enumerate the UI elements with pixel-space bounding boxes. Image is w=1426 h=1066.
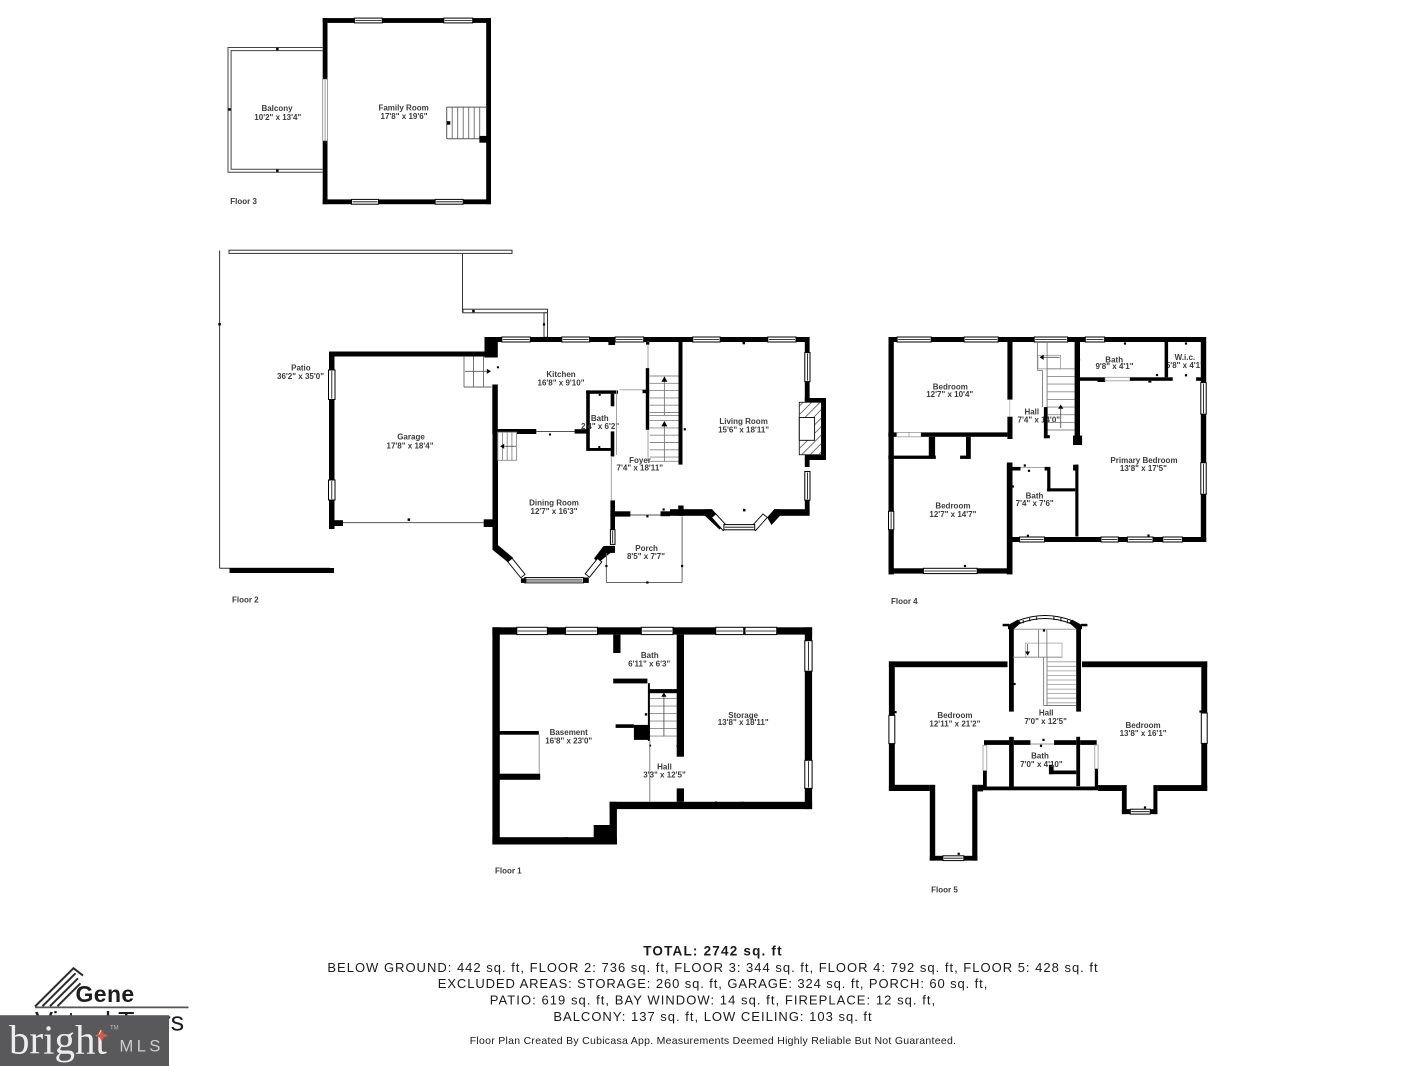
svg-text:10'2" x 13'4": 10'2" x 13'4" xyxy=(254,113,301,122)
svg-text:Balcony: Balcony xyxy=(261,104,293,113)
svg-text:17'8" x 18'4": 17'8" x 18'4" xyxy=(387,441,434,450)
svg-text:Family Room: Family Room xyxy=(378,103,428,112)
svg-text:5'8" x 4'1": 5'8" x 4'1" xyxy=(1166,361,1204,370)
svg-text:12'7" x 10'4": 12'7" x 10'4" xyxy=(926,390,973,399)
svg-text:7'0" x 12'5": 7'0" x 12'5" xyxy=(1024,717,1067,726)
svg-text:Dining Room: Dining Room xyxy=(529,498,579,507)
svg-text:PATIO: 619 sq. ft, BAY WINDOW:: PATIO: 619 sq. ft, BAY WINDOW: 14 sq. ft… xyxy=(490,993,936,1008)
svg-text:12'7" x 14'7": 12'7" x 14'7" xyxy=(929,510,976,519)
svg-text:7'4" x 18'11": 7'4" x 18'11" xyxy=(617,464,664,473)
svg-text:7'4" x 14'0": 7'4" x 14'0" xyxy=(1018,415,1061,424)
svg-text:Floor 2: Floor 2 xyxy=(232,595,259,604)
svg-text:2'4" x 6'2": 2'4" x 6'2" xyxy=(581,422,619,431)
svg-text:bright: bright xyxy=(9,1017,108,1063)
svg-text:TOTAL: 2742 sq. ft: TOTAL: 2742 sq. ft xyxy=(643,944,783,959)
svg-text:6'11" x 6'3": 6'11" x 6'3" xyxy=(628,660,670,669)
svg-text:16'8" x 9'10": 16'8" x 9'10" xyxy=(538,379,585,388)
svg-text:9'8" x 4'1": 9'8" x 4'1" xyxy=(1095,362,1133,371)
svg-text:13'8" x 17'5": 13'8" x 17'5" xyxy=(1120,464,1167,473)
svg-text:12'7" x 16'3": 12'7" x 16'3" xyxy=(531,507,578,516)
svg-text:Kitchen: Kitchen xyxy=(546,370,575,379)
svg-text:7'4" x 7'6": 7'4" x 7'6" xyxy=(1016,499,1054,508)
svg-text:Floor Plan Created By Cubicasa: Floor Plan Created By Cubicasa App. Meas… xyxy=(470,1035,957,1047)
svg-text:Garage: Garage xyxy=(397,433,425,442)
svg-text:12'11" x 21'2": 12'11" x 21'2" xyxy=(929,719,980,728)
svg-text:TM: TM xyxy=(110,1026,119,1032)
svg-text:BELOW GROUND: 442 sq. ft, FLOO: BELOW GROUND: 442 sq. ft, FLOOR 2: 736 s… xyxy=(327,960,1098,975)
svg-text:36'2" x 35'0": 36'2" x 35'0" xyxy=(277,372,324,381)
svg-text:Floor 3: Floor 3 xyxy=(230,197,257,206)
svg-text:3'3" x 12'5": 3'3" x 12'5" xyxy=(643,771,686,780)
svg-text:7'0" x 4'10": 7'0" x 4'10" xyxy=(1020,760,1063,769)
svg-text:Floor 5: Floor 5 xyxy=(931,885,958,894)
svg-text:13'8" x 18'11": 13'8" x 18'11" xyxy=(718,718,769,727)
svg-text:16'8" x 23'0": 16'8" x 23'0" xyxy=(545,737,592,746)
svg-text:8'5" x 7'7": 8'5" x 7'7" xyxy=(627,552,665,561)
svg-text:MLS: MLS xyxy=(120,1038,164,1056)
svg-text:17'8" x 19'6": 17'8" x 19'6" xyxy=(381,112,428,121)
svg-text:BALCONY: 137 sq. ft, LOW CEILI: BALCONY: 137 sq. ft, LOW CEILING: 103 sq… xyxy=(553,1009,872,1024)
svg-text:Floor 1: Floor 1 xyxy=(495,867,522,876)
svg-text:Floor 4: Floor 4 xyxy=(891,597,918,606)
svg-text:Gene: Gene xyxy=(76,981,135,1007)
svg-text:EXCLUDED AREAS: STORAGE: 260 s: EXCLUDED AREAS: STORAGE: 260 sq. ft, GAR… xyxy=(438,976,988,991)
svg-text:W.i.c.: W.i.c. xyxy=(1175,353,1195,362)
svg-text:15'6" x 18'11": 15'6" x 18'11" xyxy=(718,426,769,435)
svg-text:13'8" x 16'1": 13'8" x 16'1" xyxy=(1120,729,1167,738)
